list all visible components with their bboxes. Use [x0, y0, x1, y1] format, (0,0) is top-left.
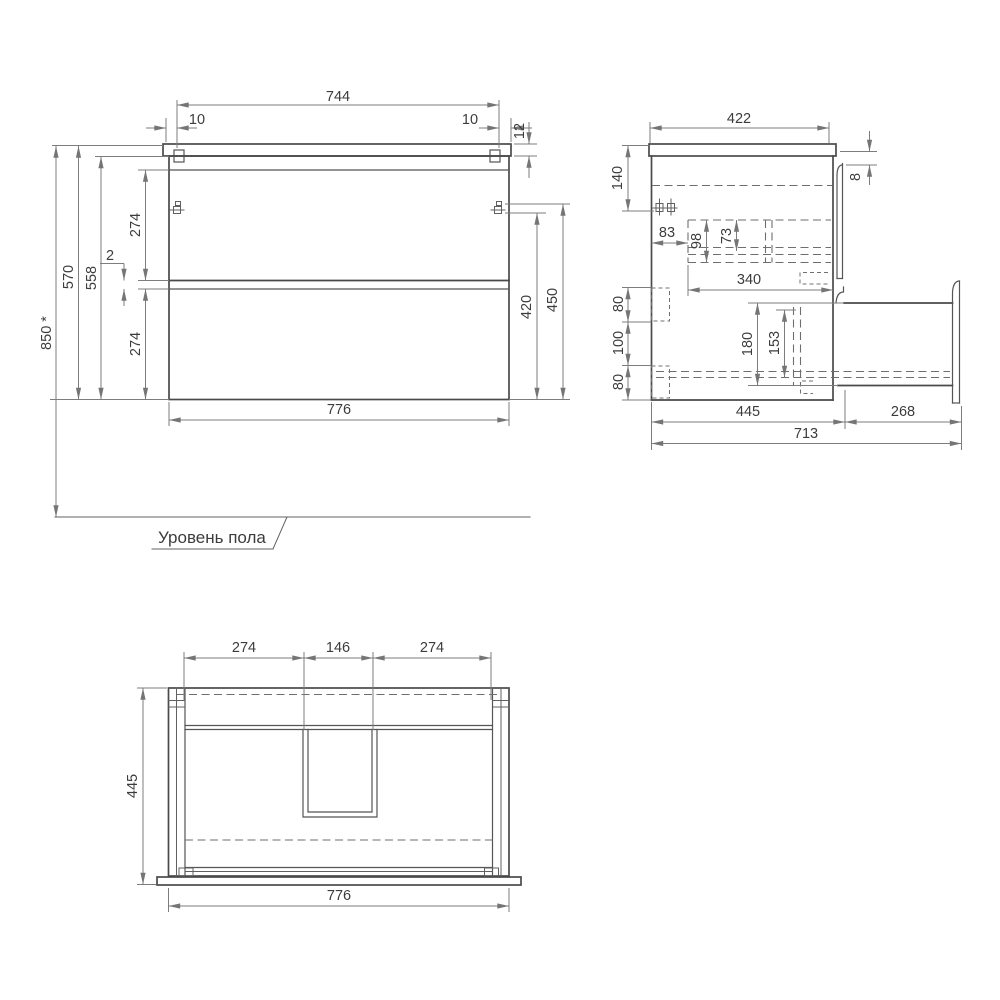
dim-bracket-height-high: 450 [545, 288, 561, 312]
dim-upper-box-depth: 340 [737, 272, 761, 288]
dim-upper-box-inner-height: 73 [719, 228, 735, 244]
dim-section-right: 274 [420, 640, 444, 656]
dim-lower-drawer-height: 274 [128, 332, 144, 356]
vanity-cabinet-drawing: 744 10 10 12 850 * [0, 0, 1000, 1000]
dim-left-offset: 10 [189, 112, 205, 128]
dim-right-offset: 10 [462, 112, 478, 128]
dim-bottom-width-under: 776 [327, 888, 351, 904]
dim-total-depth: 713 [794, 426, 818, 442]
dim-countertop-thickness: 12 [512, 123, 528, 139]
dim-cutout-width: 146 [326, 640, 350, 656]
plumbing-cutout [303, 730, 377, 818]
dim-upper-box-height: 98 [689, 233, 705, 249]
dim-body-height: 558 [84, 266, 100, 290]
upper-drawer-front-profile [837, 164, 843, 279]
dim-drawer-gap: 2 [106, 248, 114, 264]
wall-bracket-symbol-side [653, 199, 677, 215]
cabinet-body-bottom [169, 688, 510, 876]
dim-bracket-offset-back: 83 [659, 225, 675, 241]
front-view: 744 10 10 12 850 * [39, 89, 570, 517]
dim-top-depth: 422 [727, 111, 751, 127]
dim-lower-box-inner-height: 153 [767, 331, 783, 355]
wall-bracket-symbol-left [170, 202, 184, 214]
side-view: 422 140 8 83 98 73 340 [610, 111, 962, 450]
dim-bottom-depth: 445 [125, 774, 141, 798]
rear-bracket-hidden-bottom [652, 366, 670, 398]
floor-label: Уровень пола [158, 528, 266, 547]
dim-rear-spacing-mid: 100 [611, 331, 627, 355]
dim-top-gap: 8 [848, 173, 864, 181]
dim-lower-box-height: 180 [740, 332, 756, 356]
cabinet-body-front [169, 156, 509, 400]
wall-bracket-symbol-right [491, 202, 505, 214]
dim-total-height: 850 * [39, 316, 55, 350]
floor-level: Уровень пола [55, 517, 530, 549]
dim-drawer-extension: 268 [891, 404, 915, 420]
dim-bottom-width: 776 [327, 402, 351, 418]
countertop-side [649, 144, 836, 156]
dim-rear-spacing-top: 80 [611, 296, 627, 312]
rear-bracket-hidden-top [652, 288, 670, 321]
dim-top-width: 744 [326, 89, 350, 105]
technical-drawing-page: 744 10 10 12 850 * [0, 0, 1000, 1000]
dim-bracket-height-low: 420 [519, 295, 535, 319]
dim-bracket-offset-top: 140 [610, 166, 626, 190]
dim-rear-spacing-bottom: 80 [611, 374, 627, 390]
extended-drawer-profile [836, 281, 960, 403]
countertop [163, 144, 511, 156]
dim-upper-drawer-height: 274 [128, 213, 144, 237]
dim-height-with-top: 570 [61, 265, 77, 289]
bottom-view: 274 146 274 445 776 [125, 640, 521, 912]
dim-body-depth: 445 [736, 404, 760, 420]
bottom-view-outline [157, 688, 521, 885]
front-view-outline [163, 144, 511, 400]
dim-section-left: 274 [232, 640, 256, 656]
bottom-view-hidden-lines [177, 695, 502, 841]
countertop-front-edge [157, 877, 521, 885]
side-view-outline [649, 144, 960, 403]
side-view-hidden-lines [652, 186, 951, 399]
